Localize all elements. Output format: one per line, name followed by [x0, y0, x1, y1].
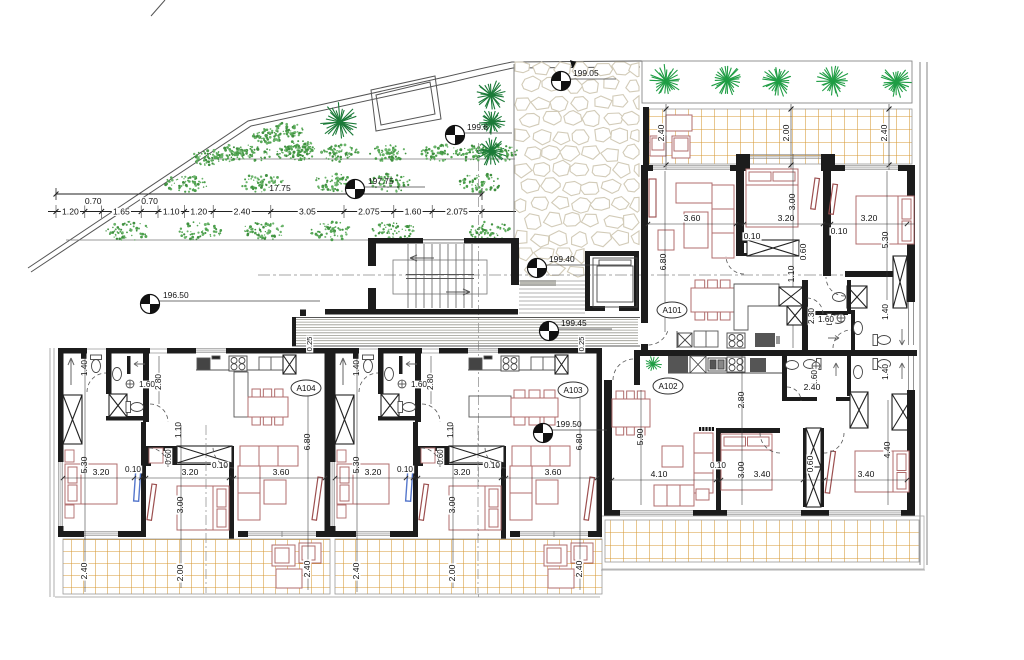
svg-text:1.40: 1.40	[881, 304, 890, 320]
svg-text:3.60: 3.60	[273, 467, 290, 477]
svg-text:1.40: 1.40	[881, 364, 890, 380]
svg-text:2.40: 2.40	[656, 124, 666, 141]
svg-text:2.40: 2.40	[234, 207, 251, 217]
svg-text:2.075: 2.075	[446, 207, 468, 217]
svg-text:A102: A102	[658, 382, 678, 391]
svg-text:6.80: 6.80	[658, 253, 668, 270]
svg-text:1.60: 1.60	[818, 315, 834, 324]
svg-text:5.90: 5.90	[635, 428, 645, 445]
svg-text:2.40: 2.40	[879, 124, 889, 141]
svg-text:196.50: 196.50	[163, 290, 189, 300]
svg-text:0.70: 0.70	[141, 196, 158, 206]
svg-text:3.20: 3.20	[93, 467, 110, 477]
svg-text:1.20: 1.20	[62, 207, 79, 217]
svg-text:2.00: 2.00	[175, 564, 185, 581]
svg-text:A103: A103	[563, 386, 583, 395]
svg-text:199.50: 199.50	[556, 419, 582, 429]
svg-text:2.80: 2.80	[154, 374, 163, 390]
svg-text:1.10: 1.10	[163, 207, 180, 217]
svg-text:2.80: 2.80	[736, 391, 746, 408]
svg-text:1.10: 1.10	[174, 422, 183, 438]
svg-text:197.75: 197.75	[368, 176, 394, 186]
svg-text:1.40: 1.40	[80, 360, 89, 376]
svg-text:3.20: 3.20	[182, 467, 199, 477]
svg-text:0.25: 0.25	[305, 337, 314, 352]
svg-text:4.10: 4.10	[651, 469, 668, 479]
svg-text:2.40: 2.40	[79, 562, 89, 579]
svg-text:1.65: 1.65	[113, 207, 130, 217]
svg-text:5.30: 5.30	[79, 456, 89, 473]
svg-text:3.00: 3.00	[736, 461, 746, 478]
svg-text:1.10: 1.10	[786, 265, 796, 282]
svg-text:3.60: 3.60	[684, 213, 701, 223]
svg-text:199.40: 199.40	[549, 254, 575, 264]
svg-text:3.20: 3.20	[778, 213, 795, 223]
svg-text:3.05: 3.05	[299, 207, 316, 217]
svg-text:3.00: 3.00	[787, 193, 797, 210]
svg-text:1.20: 1.20	[190, 207, 207, 217]
svg-text:1.60: 1.60	[405, 207, 422, 217]
svg-text:2.075: 2.075	[358, 207, 380, 217]
svg-text:3.00: 3.00	[175, 496, 185, 513]
svg-text:199.6: 199.6	[467, 122, 488, 132]
svg-text:2.30: 2.30	[807, 308, 816, 324]
svg-text:5.30: 5.30	[880, 231, 890, 248]
svg-text:0.10: 0.10	[125, 465, 141, 474]
svg-text:A101: A101	[662, 306, 682, 315]
svg-text:0.10: 0.10	[831, 226, 848, 236]
svg-text:199.45: 199.45	[561, 318, 587, 328]
svg-text:3.20: 3.20	[861, 213, 878, 223]
svg-text:2.40: 2.40	[804, 382, 821, 392]
svg-text:17.75: 17.75	[269, 183, 291, 193]
svg-text:0.60: 0.60	[164, 449, 173, 465]
svg-text:2.00: 2.00	[781, 124, 791, 141]
svg-text:4.40: 4.40	[882, 441, 892, 458]
svg-text:0.10: 0.10	[710, 461, 726, 470]
svg-text:3.40: 3.40	[858, 469, 875, 479]
svg-text:3.40: 3.40	[754, 469, 771, 479]
svg-text:2.40: 2.40	[302, 560, 312, 577]
svg-text:199.05: 199.05	[573, 68, 599, 78]
svg-text:0.60: 0.60	[798, 243, 808, 260]
svg-text:A104: A104	[296, 384, 316, 393]
svg-text:1.60: 1.60	[139, 380, 155, 389]
svg-text:0.10: 0.10	[744, 231, 761, 241]
svg-text:0.60: 0.60	[805, 455, 815, 472]
svg-text:0.70: 0.70	[85, 196, 102, 206]
svg-text:6.80: 6.80	[302, 433, 312, 450]
